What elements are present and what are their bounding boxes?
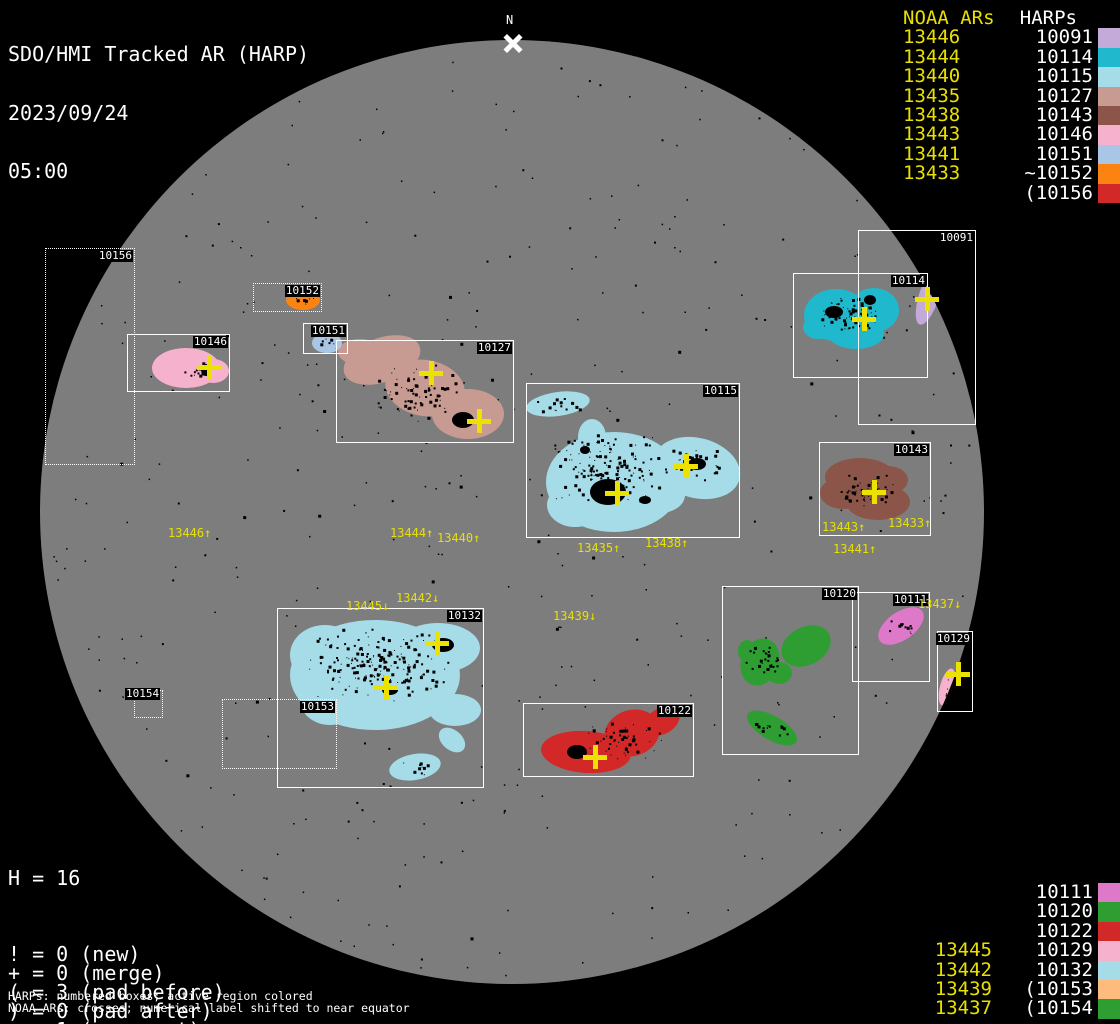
app-title: SDO/HMI Tracked AR (HARP): [8, 45, 309, 65]
harp-number: (10156: [1016, 184, 1093, 203]
region-10151: [312, 333, 342, 353]
footnotes: HARPs: numbered boxes; active region col…: [8, 990, 410, 1014]
harp-number: 10146: [1016, 125, 1093, 144]
time-label: 05:00: [8, 162, 309, 182]
color-chip-10120: [1098, 902, 1120, 921]
color-chip-10111: [1098, 883, 1120, 902]
region-10152: [286, 290, 320, 310]
color-chip-10132: [1098, 961, 1120, 980]
legend-row: (10156: [903, 184, 1120, 203]
north-pole-cross-icon: [503, 33, 523, 53]
harp-number: 10115: [1016, 67, 1093, 86]
color-chip-10115: [1098, 67, 1120, 86]
noaa-ar-number: 13440: [903, 67, 1016, 86]
color-chip-10127: [1098, 87, 1120, 106]
title-block: SDO/HMI Tracked AR (HARP) 2023/09/24 05:…: [8, 6, 309, 221]
legend-row: 13437(10154: [903, 999, 1120, 1018]
legend-row: 1344010115: [903, 67, 1120, 86]
legend-top: NOAA ARs HARPs 1344610091134441011413440…: [903, 9, 1120, 203]
harp-number: ~10152: [1016, 164, 1093, 183]
harp-number: (10154: [1016, 999, 1093, 1018]
color-chip-10143: [1098, 106, 1120, 125]
color-chip-10146: [1098, 125, 1120, 144]
north-pole-label: N: [506, 13, 513, 27]
color-chip-10091: [1098, 28, 1120, 47]
legend-bottom: 1011110120101221344510129134421013213439…: [903, 883, 1120, 1019]
legend-row: 1344510129: [903, 941, 1120, 960]
harp-number: 10120: [1016, 902, 1093, 921]
harp-number: 10129: [1016, 941, 1093, 960]
harp-count: H = 16: [8, 869, 237, 888]
noaa-ar-number: 13433: [903, 164, 1016, 183]
color-chip-10153: [1098, 980, 1120, 999]
noaa-ar-number: 13437: [903, 999, 1016, 1018]
chip-spacer: [1098, 9, 1120, 28]
harp-tracking-visualization: 1009110114101151012710143101461015110152…: [0, 0, 1120, 1024]
noaa-ar-number: 13446: [903, 28, 1016, 47]
date-label: 2023/09/24: [8, 104, 309, 124]
legend-row: 10120: [903, 902, 1120, 921]
color-chip-10154: [1098, 999, 1120, 1018]
legend-row: 13433~10152: [903, 164, 1120, 183]
noaa-ar-number: 13445: [903, 941, 1016, 960]
color-chip-10151: [1098, 145, 1120, 164]
color-chip-10152: [1098, 164, 1120, 183]
noaa-ar-number: 13443: [903, 125, 1016, 144]
color-chip-10122: [1098, 922, 1120, 941]
color-chip-10114: [1098, 48, 1120, 67]
color-chip-10156: [1098, 184, 1120, 203]
harp-number: 10091: [1016, 28, 1093, 47]
legend-row: 1344310146: [903, 125, 1120, 144]
color-chip-10129: [1098, 941, 1120, 960]
legend-row: 1344610091: [903, 28, 1120, 47]
footnote-line: NOAA ARs: crosses; numerical label shift…: [8, 1002, 410, 1014]
